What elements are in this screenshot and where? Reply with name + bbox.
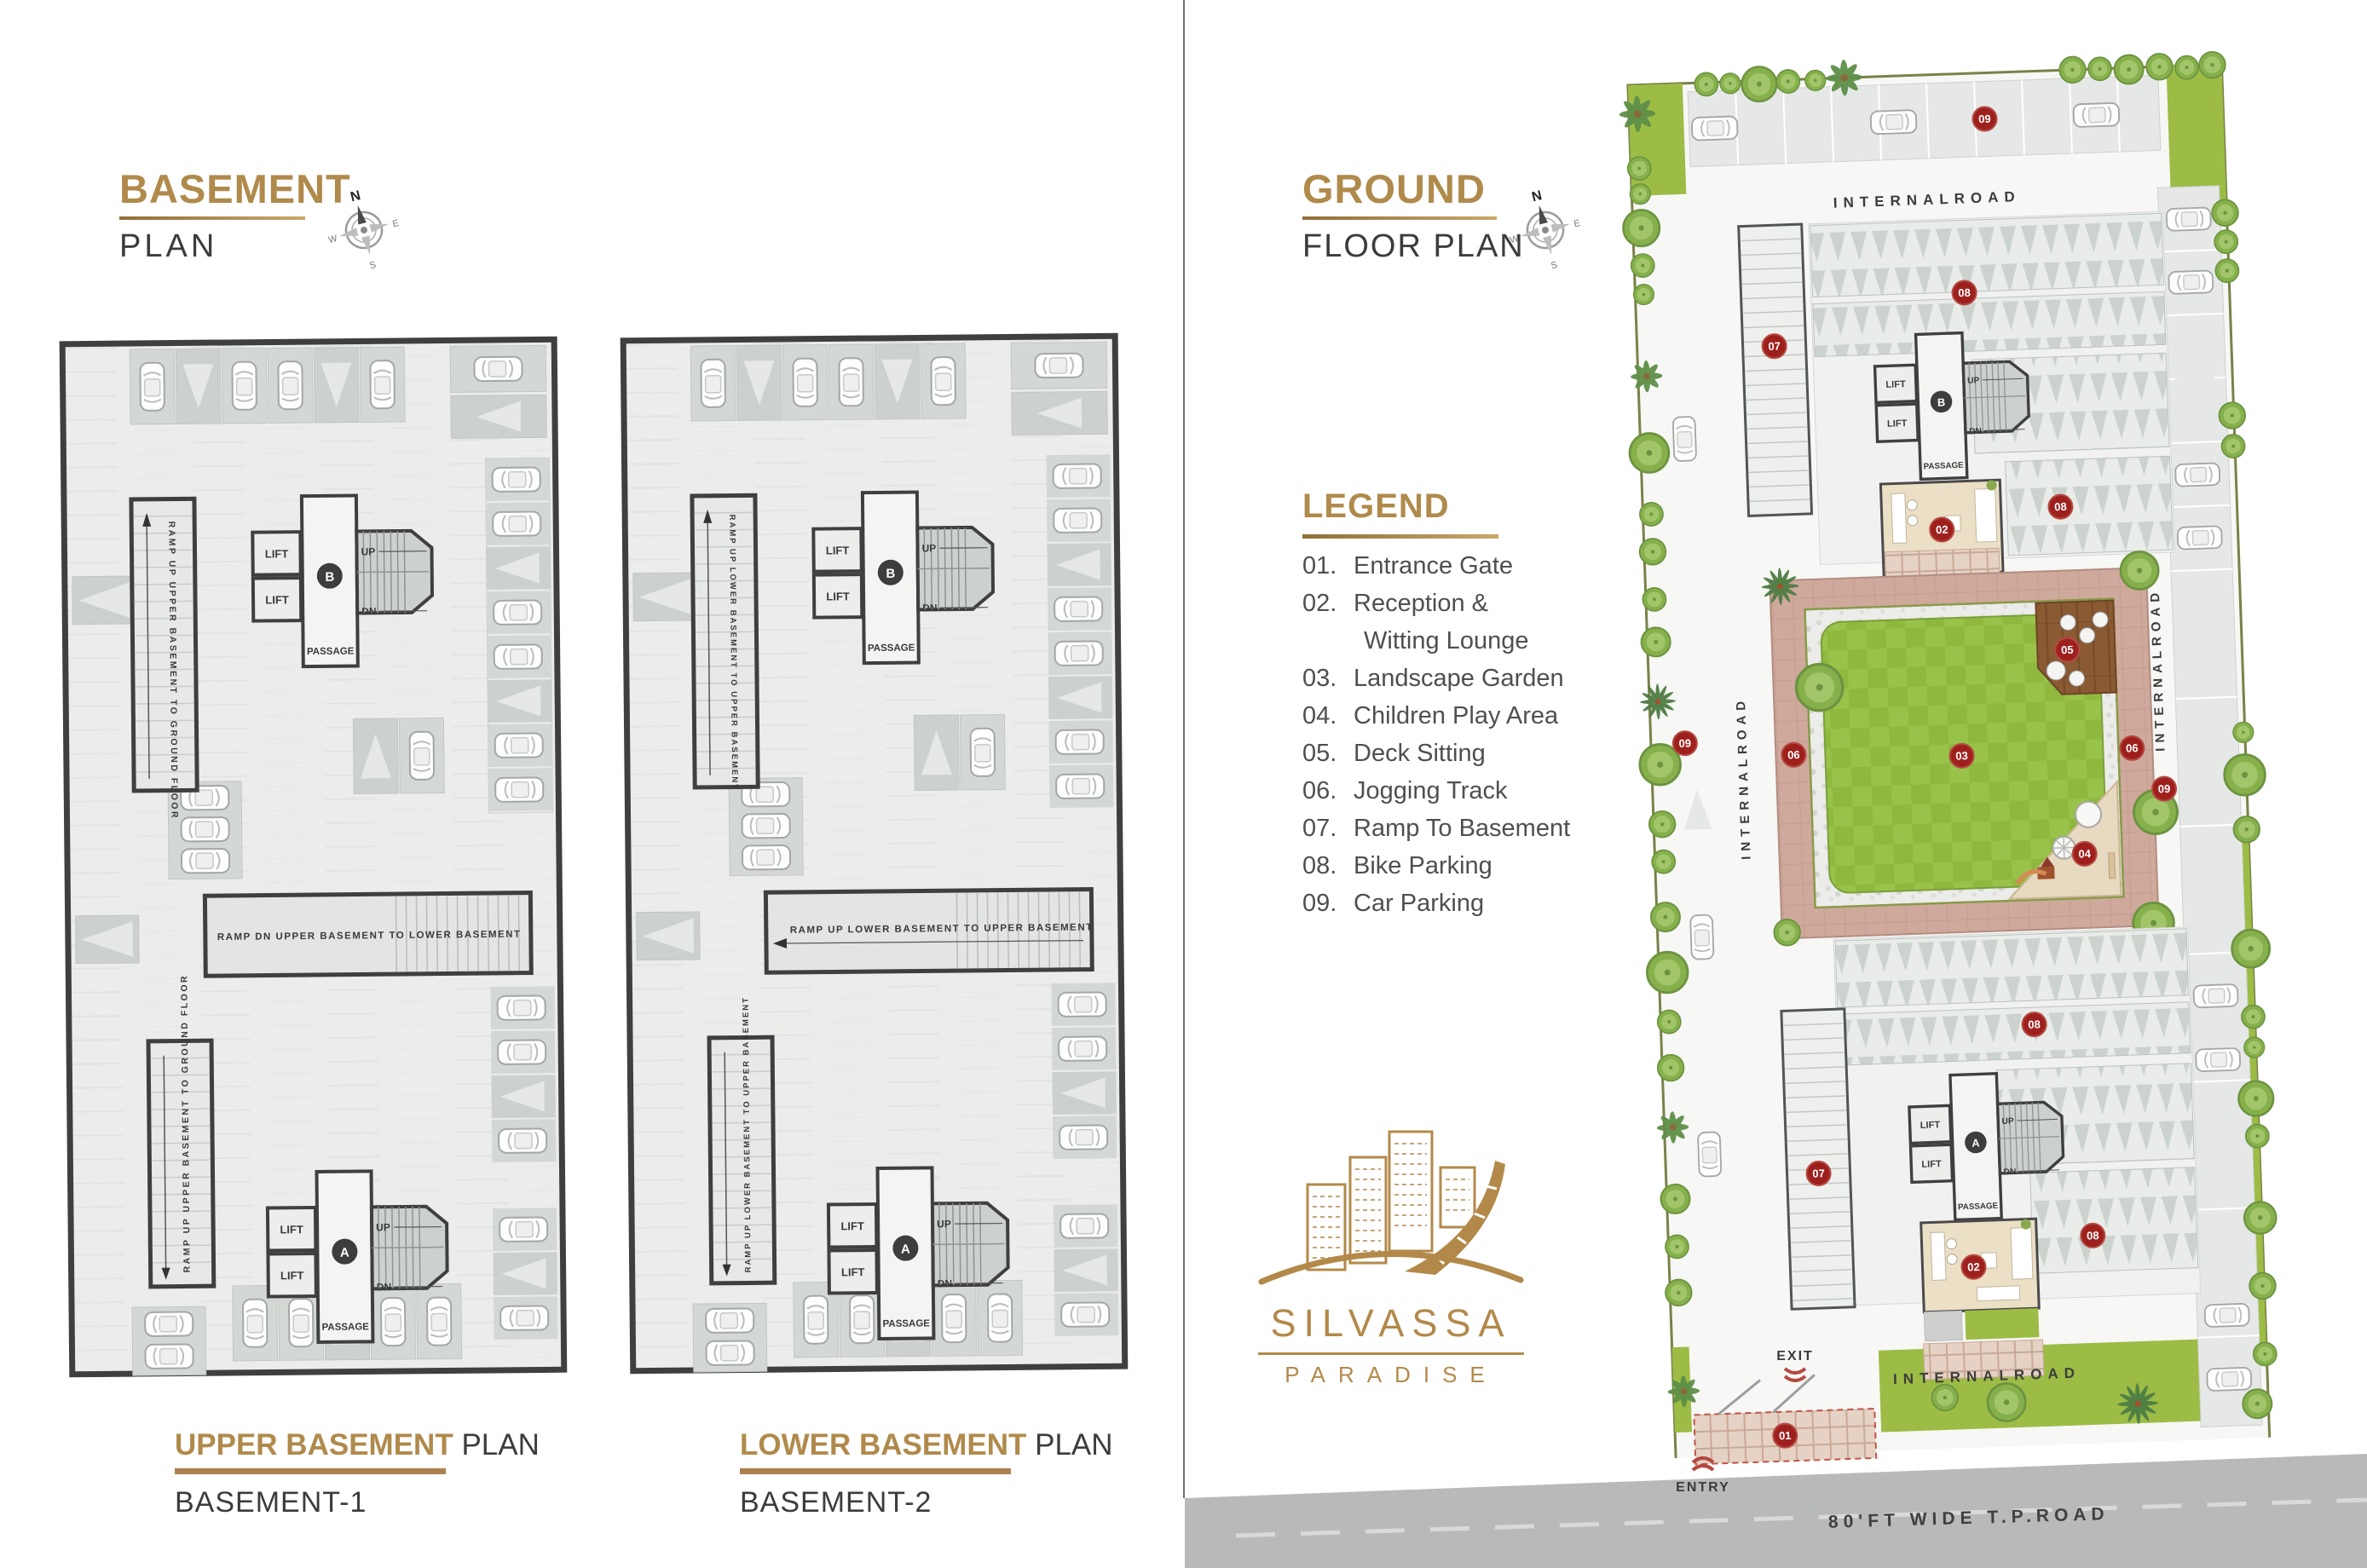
- tp-road: 80'FT WIDE T.P.ROAD: [1185, 1454, 2367, 1568]
- up-label: UP: [1967, 376, 1980, 385]
- page-title: BASEMENT: [119, 169, 351, 209]
- entry-label: ENTRY: [1676, 1480, 1730, 1495]
- up-label: UP: [937, 1218, 951, 1230]
- lift-label: LIFT: [826, 544, 850, 556]
- ramp-to-basement: [1781, 1009, 1855, 1309]
- tower-letter: B: [1937, 395, 1946, 408]
- svg-text:08: 08: [2087, 1229, 2099, 1242]
- site-plot: INTERNALROAD INTERNALROAD: [1615, 46, 2288, 1466]
- caption-highlight: UPPER BASEMENT: [175, 1428, 453, 1461]
- marker-08: 08: [2081, 1223, 2105, 1248]
- svg-text:03: 03: [1955, 749, 1968, 762]
- compass-n: N: [349, 188, 362, 205]
- marker-08: 08: [1952, 280, 1977, 305]
- upper-basement-caption: UPPER BASEMENT PLAN BASEMENT-1: [175, 1430, 540, 1519]
- lift-label: LIFT: [265, 547, 289, 560]
- ramp-upper: RAMP UP UPPER BASEMENT TO GROUND FLOOR: [131, 499, 198, 820]
- passage-label: PASSAGE: [868, 643, 915, 654]
- passage-label: PASSAGE: [1923, 461, 1964, 472]
- marker-06: 06: [1781, 742, 1806, 767]
- tower-letter: A: [340, 1246, 349, 1260]
- passage-label: PASSAGE: [1958, 1202, 1999, 1213]
- svg-text:09: 09: [1678, 736, 1691, 749]
- central-ramp: RAMP DN UPPER BASEMENT TO LOWER BASEMENT: [205, 893, 531, 977]
- dn-label: DN: [377, 1281, 391, 1293]
- dn-label: DN: [938, 1277, 952, 1289]
- caption-rest: PLAN: [453, 1428, 540, 1461]
- marker-04: 04: [2072, 841, 2097, 866]
- page-subtitle: PLAN: [119, 230, 351, 262]
- svg-text:05: 05: [2061, 643, 2074, 656]
- lift-label: LIFT: [1920, 1120, 1941, 1131]
- ground-floor-site-plan: 80'FT WIDE T.P.ROAD INTERNALROAD: [1185, 0, 2367, 1568]
- svg-text:04: 04: [2078, 847, 2092, 861]
- caption-sub: BASEMENT-2: [740, 1486, 1113, 1519]
- lift-label: LIFT: [841, 1265, 865, 1278]
- bike-parking: [1835, 929, 2188, 1007]
- brochure-page: BASEMENT PLAN N E W S: [0, 0, 2367, 1568]
- lift-label: LIFT: [1887, 418, 1908, 429]
- tower-letter: A: [901, 1242, 910, 1257]
- bike-parking: [1810, 213, 2164, 297]
- compass-s: S: [368, 260, 377, 271]
- lift-label: LIFT: [840, 1219, 864, 1232]
- svg-text:06: 06: [2126, 741, 2139, 754]
- bike-parking: [2006, 456, 2174, 556]
- tower-letter: B: [325, 570, 334, 585]
- marker-07: 07: [1762, 334, 1787, 359]
- dn-label: DN: [1969, 427, 1982, 437]
- up-label: UP: [376, 1221, 390, 1233]
- svg-text:02: 02: [1936, 523, 1948, 536]
- caption-sub: BASEMENT-1: [175, 1486, 540, 1519]
- passage-label: PASSAGE: [322, 1322, 370, 1333]
- up-label: UP: [921, 542, 936, 554]
- caption-highlight: LOWER BASEMENT: [740, 1428, 1026, 1461]
- up-label: UP: [361, 545, 375, 557]
- compass-rose: N E W S: [317, 181, 411, 274]
- svg-text:08: 08: [2054, 500, 2067, 513]
- upper-basement-plan-drawing: RAMP UP UPPER BASEMENT TO GROUND FLOOR R…: [56, 331, 571, 1387]
- marker-09: 09: [2152, 776, 2177, 801]
- exit-label: EXIT: [1776, 1349, 1814, 1363]
- dn-label: DN: [2003, 1167, 2016, 1178]
- marker-05: 05: [2055, 637, 2080, 662]
- compass-e: E: [391, 218, 400, 229]
- caption-underline: [740, 1468, 1011, 1474]
- passage-label: PASSAGE: [883, 1318, 931, 1329]
- svg-text:07: 07: [1812, 1167, 1825, 1179]
- tower-letter: B: [886, 567, 895, 581]
- ramp-to-basement: [1739, 224, 1812, 516]
- caption-rest: PLAN: [1026, 1428, 1112, 1461]
- svg-text:07: 07: [1768, 340, 1781, 353]
- lower-basement-plan-drawing: RAMP UP LOWER BASEMENT TO UPPER BASEMENT…: [617, 328, 1132, 1384]
- caption-underline: [175, 1468, 446, 1474]
- lift-label: LIFT: [826, 590, 850, 602]
- marker-06: 06: [2120, 735, 2145, 760]
- svg-text:02: 02: [1967, 1260, 1980, 1273]
- marker-09: 09: [1972, 107, 1997, 131]
- marker-02: 02: [1930, 517, 1954, 542]
- basement-title-block: BASEMENT PLAN: [119, 169, 351, 262]
- ramp-lower: RAMP UP LOWER BASEMENT TO UPPER BASEMENT: [709, 996, 775, 1283]
- lift-label: LIFT: [280, 1223, 303, 1236]
- marker-09: 09: [1672, 731, 1697, 756]
- svg-text:06: 06: [1787, 748, 1800, 761]
- passage-label: PASSAGE: [307, 647, 355, 658]
- svg-text:08: 08: [2028, 1017, 2041, 1030]
- marker-01: 01: [1773, 1423, 1798, 1448]
- svg-text:08: 08: [1958, 286, 1971, 299]
- svg-text:01: 01: [1779, 1429, 1792, 1442]
- svg-text:09: 09: [2158, 782, 2171, 795]
- svg-text:09: 09: [1978, 112, 1991, 125]
- lift-label: LIFT: [1921, 1159, 1942, 1170]
- marker-08: 08: [2048, 494, 2073, 519]
- marker-07: 07: [1806, 1162, 1831, 1186]
- dn-label: DN: [922, 602, 937, 614]
- lift-label: LIFT: [280, 1269, 304, 1282]
- dn-label: DN: [361, 605, 376, 617]
- lift-label: LIFT: [1885, 379, 1906, 390]
- central-ramp: RAMP UP LOWER BASEMENT TO UPPER BASEMENT: [765, 890, 1094, 973]
- marker-08: 08: [2022, 1012, 2047, 1037]
- title-underline: [119, 216, 305, 220]
- ramp-upper: RAMP UP LOWER BASEMENT TO UPPER BASEMENT: [692, 495, 758, 791]
- lower-basement-caption: LOWER BASEMENT PLAN BASEMENT-2: [740, 1430, 1113, 1519]
- bike-parking: [2030, 1167, 2198, 1274]
- compass-icon: [333, 199, 395, 262]
- marker-03: 03: [1949, 743, 1974, 768]
- compass-w: W: [327, 233, 339, 245]
- marker-02: 02: [1961, 1254, 1986, 1279]
- tower-letter: A: [1972, 1136, 1980, 1149]
- up-label: UP: [2001, 1117, 2014, 1127]
- lift-label: LIFT: [265, 593, 289, 606]
